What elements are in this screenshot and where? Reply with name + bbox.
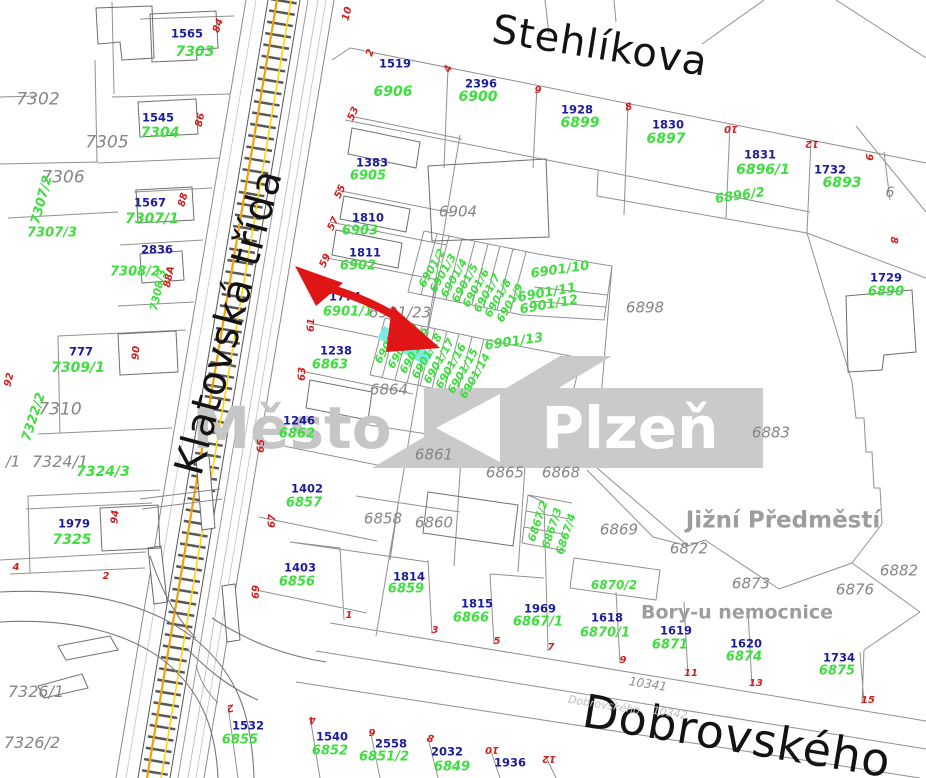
arrow-shaft bbox=[329, 288, 398, 318]
annotation-arrow bbox=[0, 0, 926, 778]
cadastral-map[interactable]: MěstoPlzeňStehlíkovaKlatovská třídaDobro… bbox=[0, 0, 926, 778]
